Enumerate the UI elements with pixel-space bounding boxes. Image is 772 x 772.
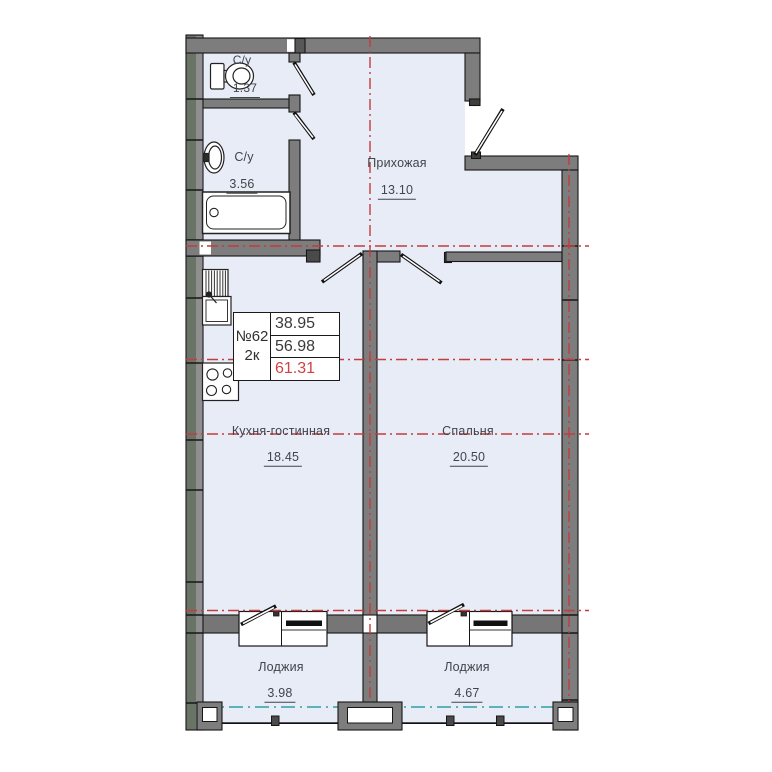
loggia-post-left-glass [203,708,218,722]
bathroom-sink-faucet [204,154,210,162]
wall-hall-bottom-right [446,252,562,262]
room-label-bathroom-small: С/у [233,54,252,66]
kitchen-sink-symbol [203,270,232,326]
wall-top-shaft [295,39,305,54]
room-area-bedroom: 20.50 [450,450,488,467]
room-area-kitchen-living: 18.45 [264,450,302,467]
wall-window-1 [203,615,239,633]
unit-area-total: 61.31 [271,357,339,380]
window-glazing-bedroom [474,621,508,627]
loggia-mullion-1 [272,716,280,726]
wall-bath-bottom-notch [200,242,212,255]
wall-exterior-right [562,170,578,730]
room-area-loggia-left: 3.98 [264,686,295,703]
door-leaf-entry [475,109,503,155]
wall-window-4 [512,615,562,633]
wall-exterior-top [186,38,480,53]
wall-bath-divider [203,99,298,108]
unit-number: №62 [236,328,269,347]
wall-partition-rooms [363,251,377,615]
room-label-bedroom: Спальня [442,425,494,438]
wall-window-2 [327,615,363,633]
room-label-loggia-right: Лоджия [444,661,490,674]
room-label-bathroom-large: С/у [234,151,253,164]
unit-number-cell: №62 2к [234,313,270,380]
wall-hall-topright [465,156,578,170]
wall-entry-step [465,53,480,101]
room-label-hallway: Прихожая [367,157,427,170]
window-glazing-kitchen [286,621,322,627]
bathroom-sink-symbol [204,142,225,173]
unit-info-table: №62 2к 38.95 56.98 61.31 [233,312,340,381]
wall-window-3 [377,615,427,633]
room-label-kitchen-living: Кухня-гостинная [232,425,330,438]
loggia-mullion-2 [447,716,455,726]
wall-bath-partition-top [289,53,300,62]
unit-area-usable: 56.98 [271,335,339,358]
bathtub-drain [210,208,218,216]
loggia-post-center-glass [348,708,393,724]
balcony-door-hinge-kitchen [274,611,280,616]
unit-type: 2к [245,347,260,366]
floor-main-right [465,168,562,615]
room-label-loggia-left: Лоджия [258,661,304,674]
toilet-tank [211,64,225,90]
loggia-post-right-glass [558,708,573,722]
kitchen-sink-bowl [203,297,232,326]
floor-plan-drawing [0,0,772,772]
entry-jamb-top [470,99,481,106]
room-area-hallway: 13.10 [378,183,416,200]
wall-bath-partition-mid [289,95,300,112]
wall-top-gap [287,39,295,52]
room-area-loggia-right: 4.67 [451,686,482,703]
loggia-mullion-3 [497,716,505,726]
bathtub-symbol [203,192,291,234]
unit-areas-cell: 38.95 56.98 61.31 [270,313,339,380]
kitchen-door-jamb [307,250,321,262]
room-area-bathroom-small: 1.37 [230,81,260,98]
bathroom-sink-inner [209,146,222,169]
floor-plan: С/у 1.37 С/у 3.56 Прихожая 13.10 Кухня-г… [0,0,772,772]
room-area-bathroom-large: 3.56 [226,177,257,194]
unit-area-living: 38.95 [271,313,339,335]
balcony-door-hinge-bedroom [461,611,467,616]
